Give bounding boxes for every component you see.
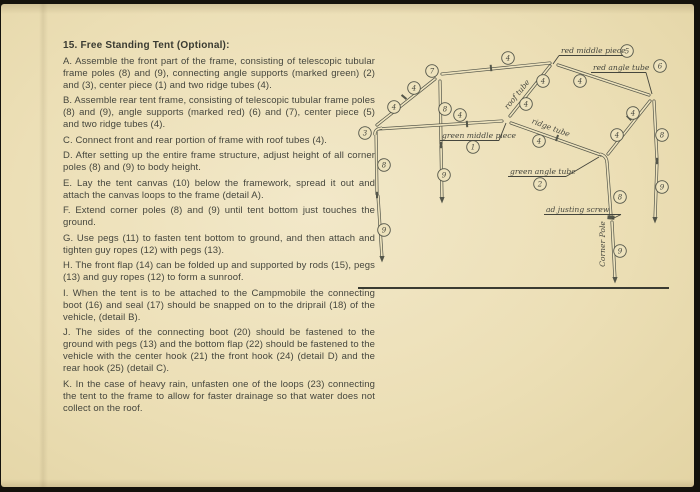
tent-frame-diagram: 374489414445464442898989red middle piece… xyxy=(346,24,696,299)
instruction-paragraph-I: I. When the tent is to be attached to th… xyxy=(63,288,375,324)
callout-number-4: 4 xyxy=(630,110,635,118)
callout-number-9: 9 xyxy=(660,184,665,192)
red-middle-piece-label-leader xyxy=(553,56,559,65)
instruction-paragraph-E: E. Lay the tent canvas (10) below the fr… xyxy=(63,178,375,202)
left-roof-tube-inner xyxy=(377,79,435,125)
front-left-pole-upper-inner xyxy=(376,132,377,194)
scanned-manual-page: 15. Free Standing Tent (Optional): A. As… xyxy=(1,4,694,487)
rear-ridge-left-tube-inner xyxy=(442,63,550,74)
instruction-paragraph-A: A. Assemble the front part of the frame,… xyxy=(63,56,375,92)
callout-number-4: 4 xyxy=(505,55,510,63)
callout-number-8: 8 xyxy=(443,106,448,114)
pole-arrow xyxy=(612,277,617,284)
callout-number-8: 8 xyxy=(618,194,623,202)
instruction-paragraph-F: F. Extend corner poles (8) and (9) until… xyxy=(63,205,375,229)
instructions-list: A. Assemble the front part of the frame,… xyxy=(63,56,375,415)
instruction-paragraph-B: B. Assemble rear tent frame, consisting … xyxy=(63,95,375,131)
callout-number-4: 4 xyxy=(536,138,541,146)
instructions-column: 15. Free Standing Tent (Optional): A. As… xyxy=(63,40,375,418)
instruction-paragraph-J: J. The sides of the connecting boot (20)… xyxy=(63,327,375,375)
callout-number-3: 3 xyxy=(363,130,368,138)
instruction-paragraph-K: K. In the case of heavy rain, unfasten o… xyxy=(63,379,375,415)
callout-number-4: 4 xyxy=(523,101,528,109)
green-angle-tube-label: green angle tube xyxy=(510,167,576,176)
callout-number-4: 4 xyxy=(391,104,396,112)
joint-tick xyxy=(402,95,407,99)
callout-number-9: 9 xyxy=(382,227,387,235)
green-middle-piece-label: green middle piece xyxy=(442,131,517,140)
instruction-paragraph-C: C. Connect front and rear portion of fra… xyxy=(63,135,375,147)
red-angle-tube-label-leader xyxy=(646,73,652,95)
callout-number-4: 4 xyxy=(411,85,416,93)
pole-arrow xyxy=(439,197,444,204)
corner-pole-label: Corner Pole xyxy=(598,221,607,267)
adjusting-screw xyxy=(607,215,614,220)
callout-number-1: 1 xyxy=(471,144,475,152)
pole-arrow xyxy=(379,256,384,263)
callout-number-9: 9 xyxy=(618,248,623,256)
callout-number-8: 8 xyxy=(660,132,665,140)
callout-number-4: 4 xyxy=(540,78,545,86)
pole-arrow xyxy=(652,217,657,224)
callout-number-9: 9 xyxy=(442,172,447,180)
adjusting-screw-label: ad justing screw xyxy=(546,205,610,214)
callout-number-8: 8 xyxy=(382,162,387,170)
callout-number-4: 4 xyxy=(614,132,619,140)
callout-number-4: 4 xyxy=(577,78,582,86)
instruction-paragraph-H: H. The front flap (14) can be folded up … xyxy=(63,260,375,284)
red-angle-tube-label: red angle tube xyxy=(593,63,650,72)
joint-tick xyxy=(491,65,492,71)
callout-number-4: 4 xyxy=(457,112,462,120)
red-middle-piece-label: red middle piece xyxy=(561,46,626,55)
callout-number-2: 2 xyxy=(537,181,543,189)
callout-number-7: 7 xyxy=(430,68,435,76)
callout-number-6: 6 xyxy=(658,63,663,71)
instruction-paragraph-G: G. Use pegs (11) to fasten tent bottom t… xyxy=(63,233,375,257)
instruction-paragraph-D: D. After setting up the entire frame str… xyxy=(63,150,375,174)
section-heading: 15. Free Standing Tent (Optional): xyxy=(63,40,375,52)
